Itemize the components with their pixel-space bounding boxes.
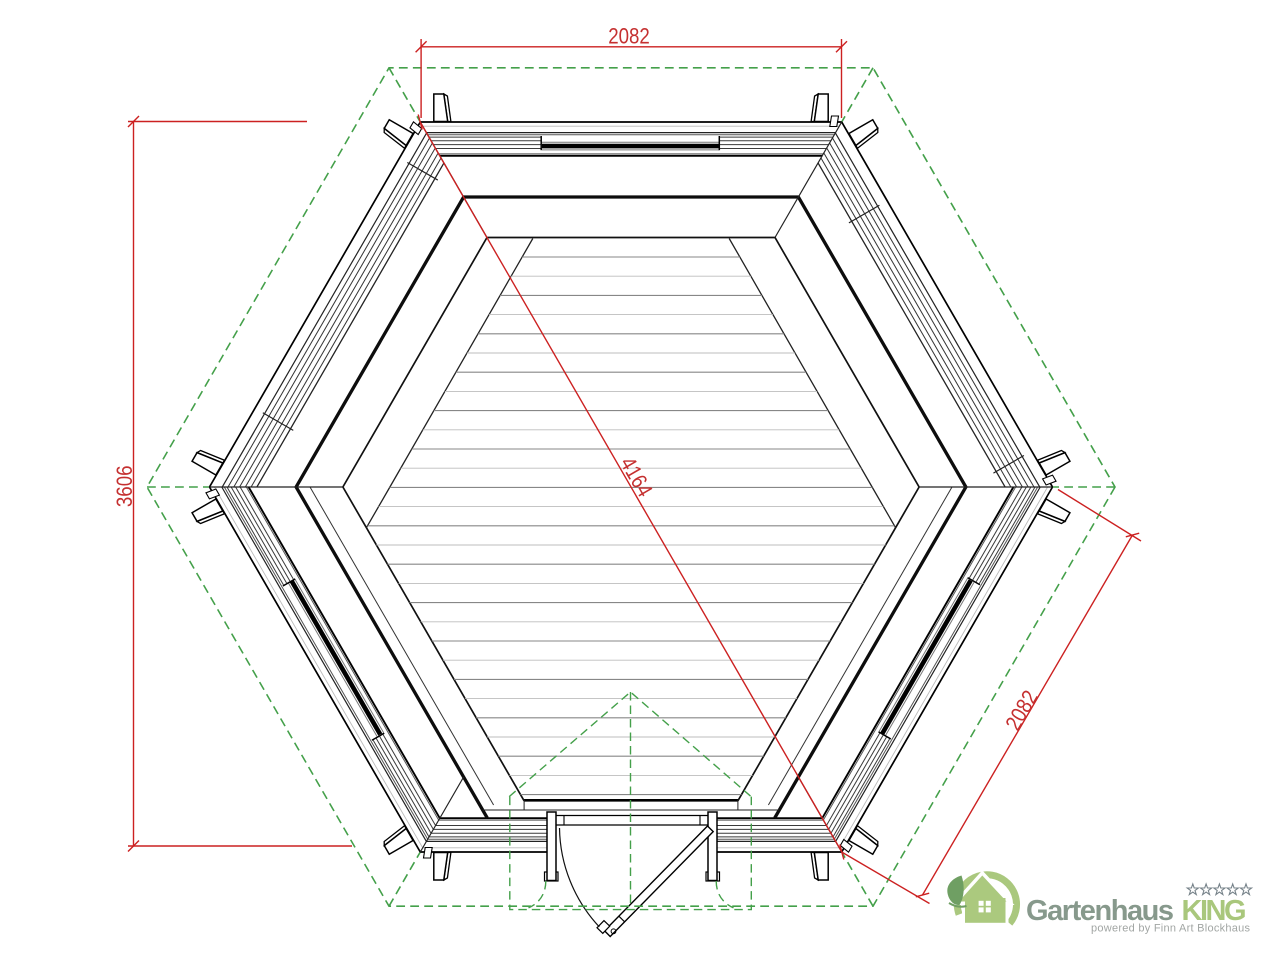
svg-text:3606: 3606 — [114, 466, 138, 508]
svg-text:powered by Finn Art Blockhaus: powered by Finn Art Blockhaus — [1091, 923, 1251, 935]
svg-text:2082: 2082 — [608, 25, 650, 49]
